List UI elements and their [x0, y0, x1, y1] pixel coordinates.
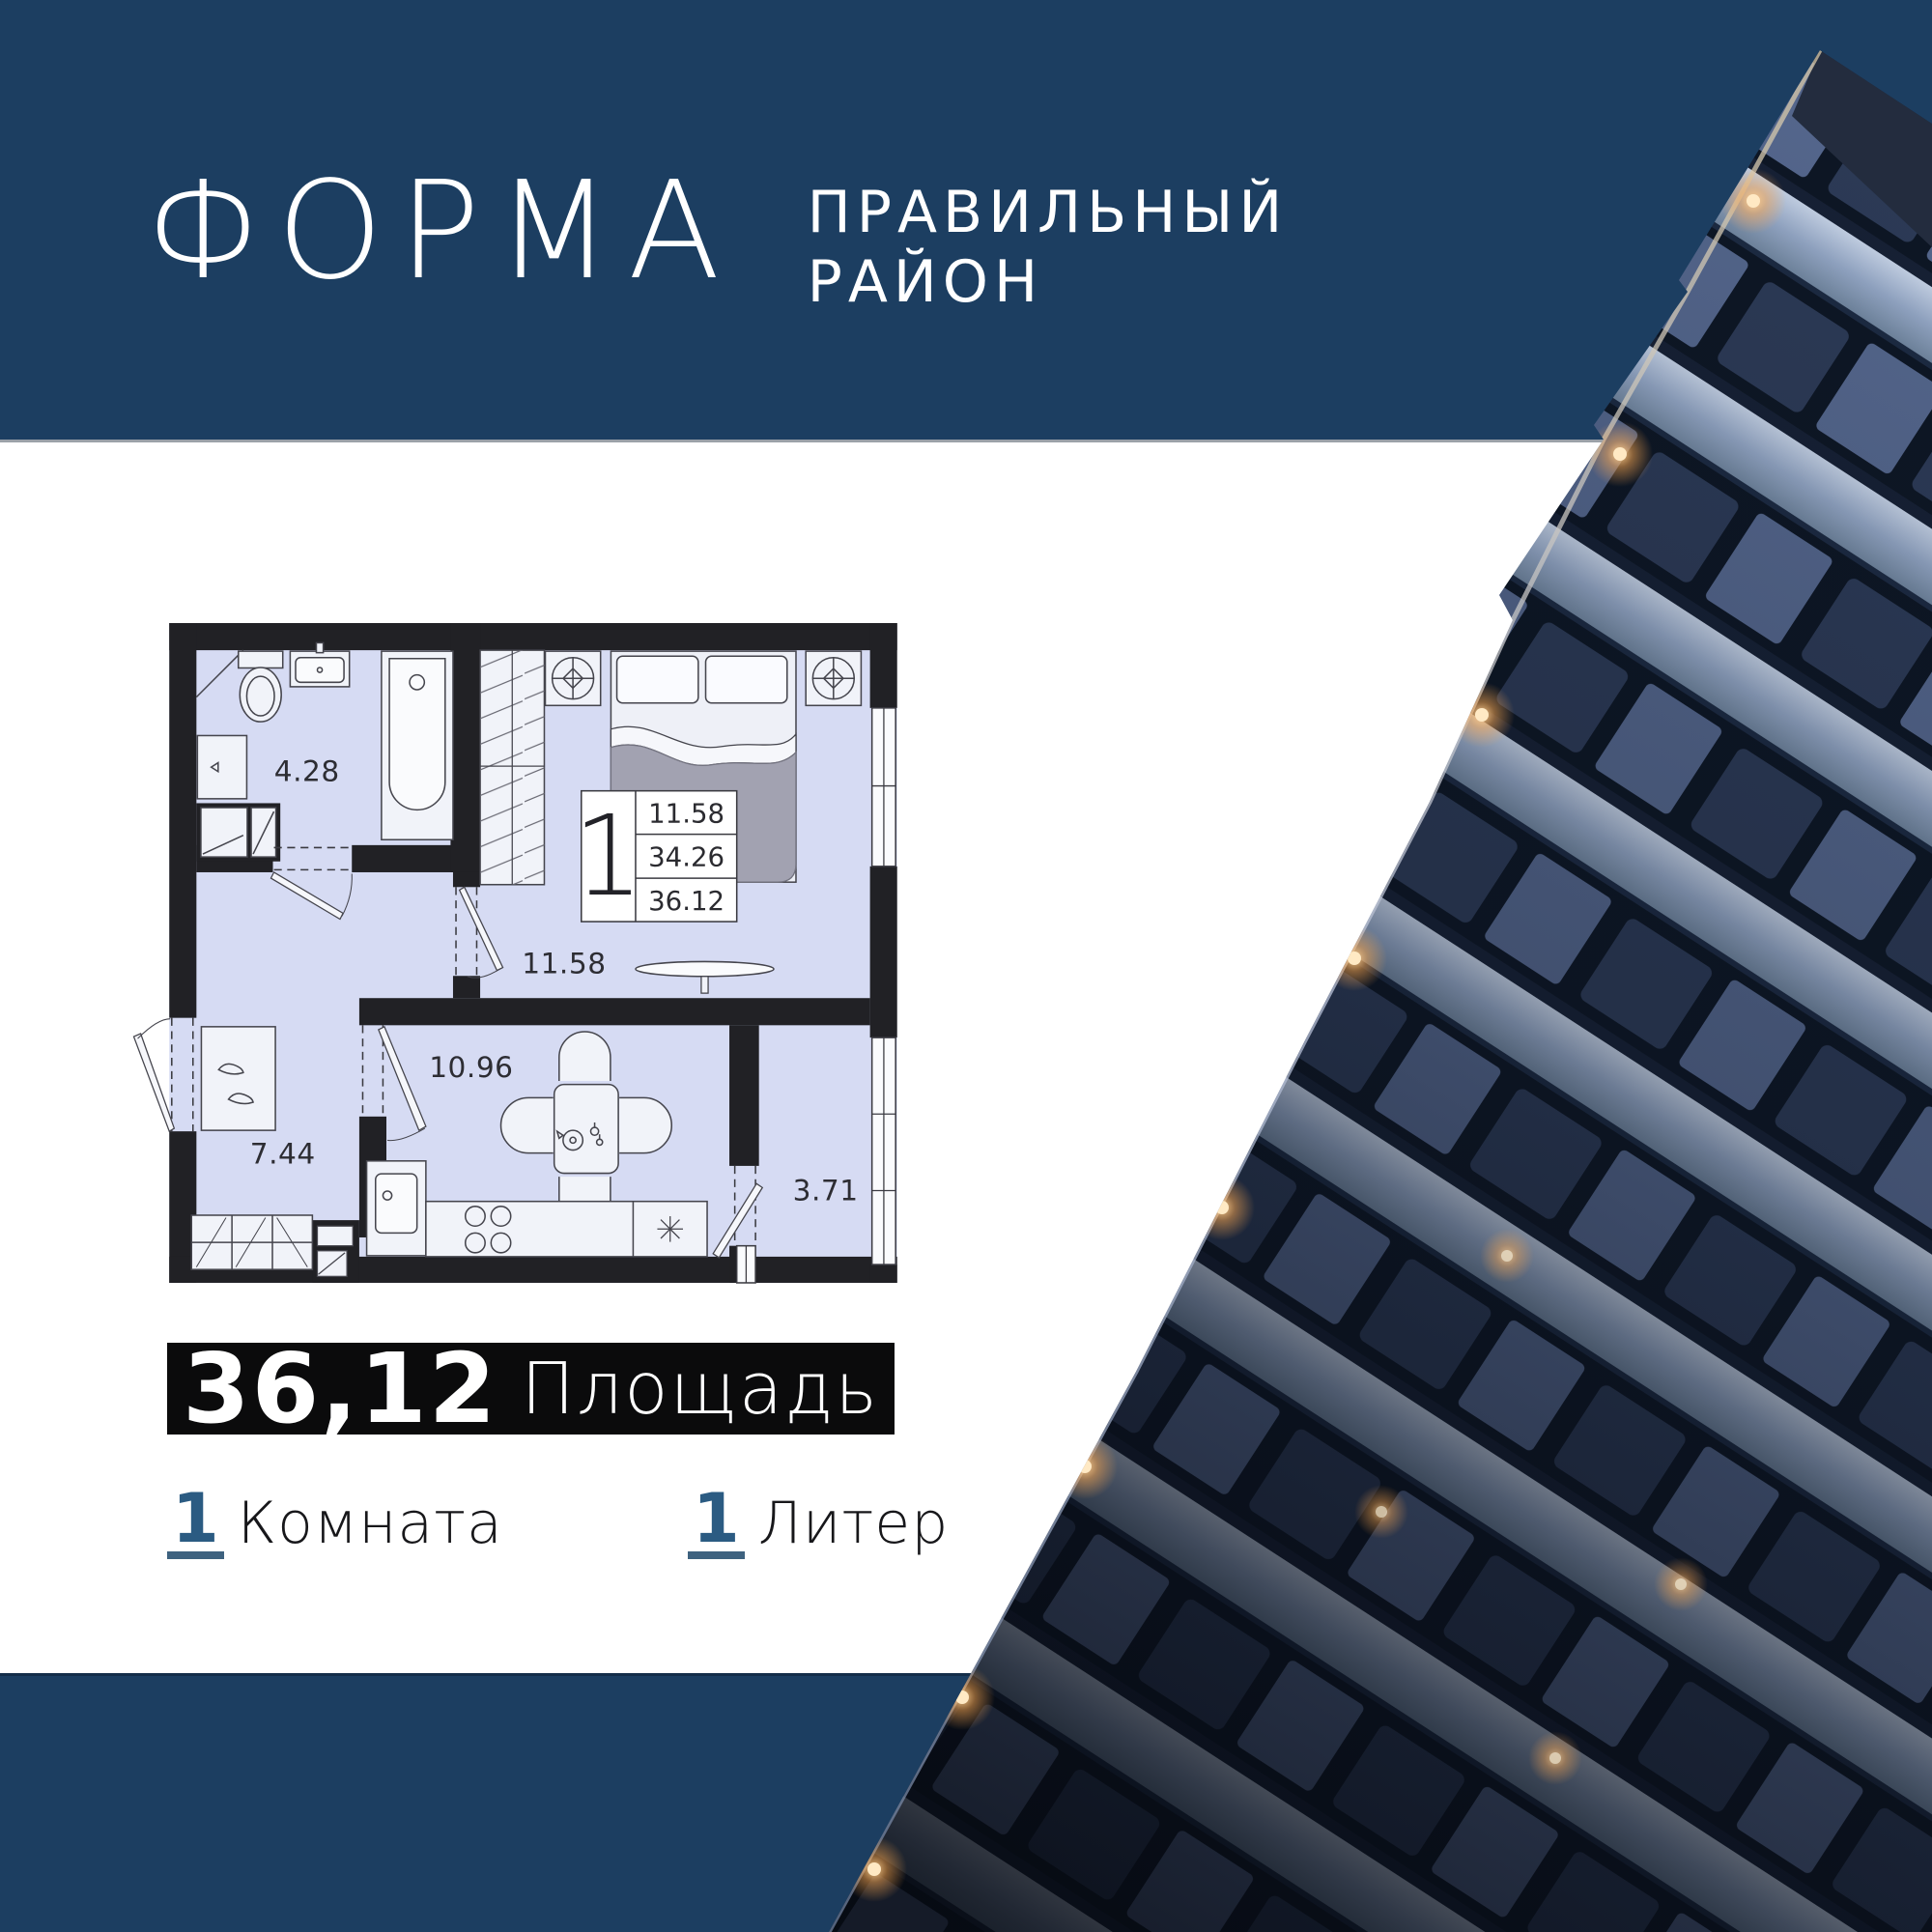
building-facade [676, 0, 1932, 1932]
poster-canvas: ФОРМА ПРАВИЛЬНЫЙ РАЙОН [0, 0, 1932, 1932]
building-photo [0, 0, 1932, 1932]
